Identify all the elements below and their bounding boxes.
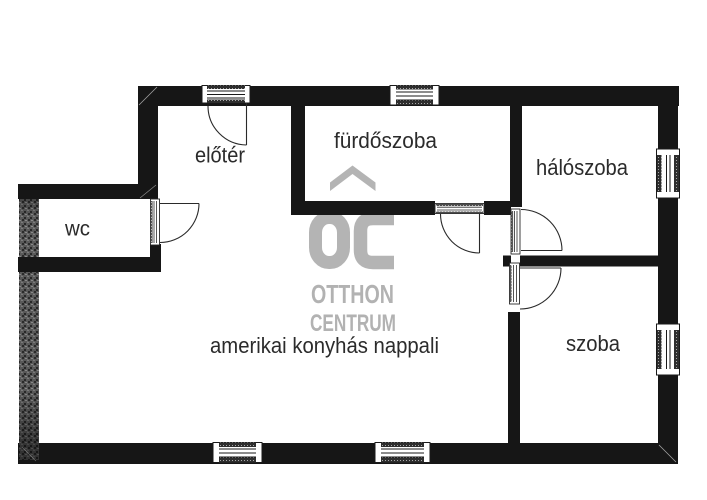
svg-text:amerikai konyhás nappali: amerikai konyhás nappali (210, 333, 439, 358)
svg-text:wc: wc (64, 218, 90, 241)
svg-text:fürdőszoba: fürdőszoba (334, 128, 438, 153)
svg-text:szoba: szoba (566, 331, 621, 356)
svg-text:OTTHON: OTTHON (311, 279, 394, 309)
svg-text:előtér: előtér (195, 143, 245, 168)
svg-text:hálószoba: hálószoba (536, 155, 629, 180)
